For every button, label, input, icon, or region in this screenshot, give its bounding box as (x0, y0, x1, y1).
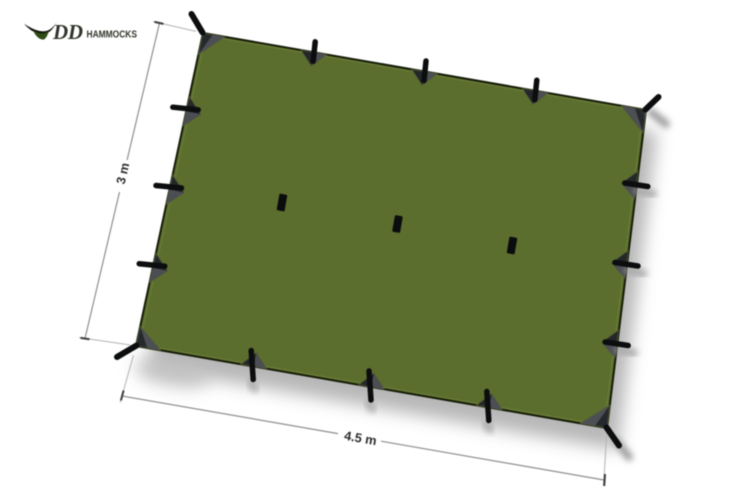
svg-text:HAMMOCKS: HAMMOCKS (87, 29, 138, 40)
svg-text:DD: DD (52, 20, 83, 44)
